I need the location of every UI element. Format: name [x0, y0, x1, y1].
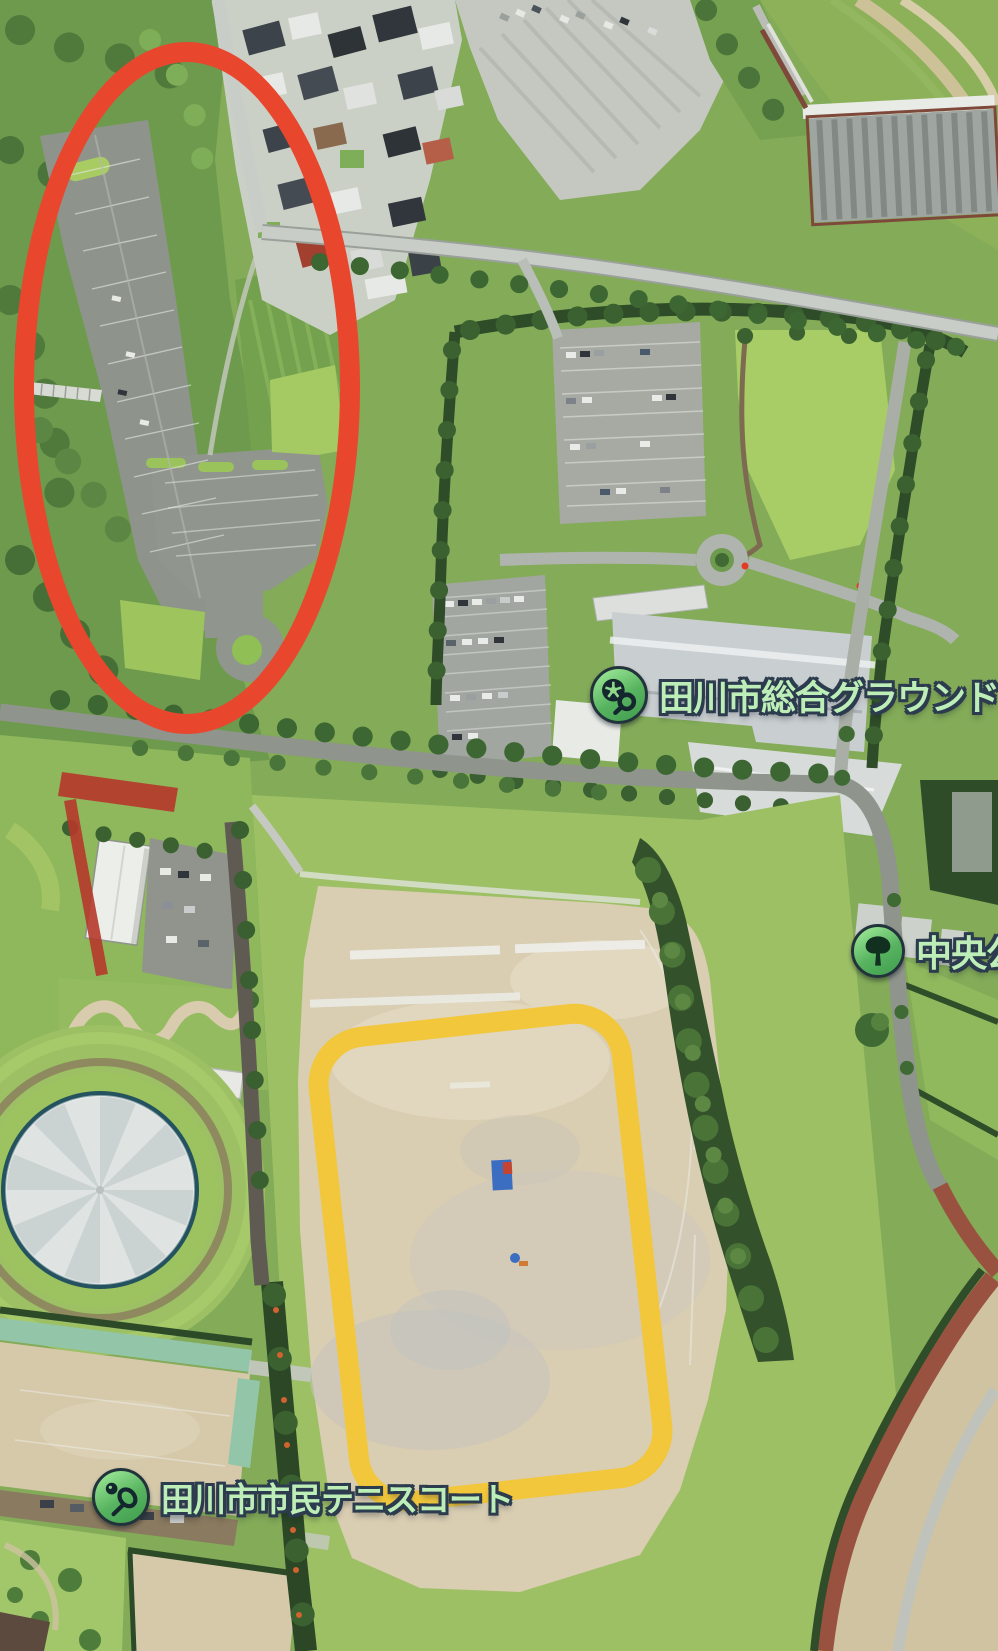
soccer-ball-search-icon	[590, 666, 648, 724]
park-tree-icon	[851, 924, 905, 978]
poi-label-central-park[interactable]: 中央公	[851, 924, 998, 978]
red-ellipse-annotation	[14, 42, 360, 734]
tennis-racket-icon	[92, 1468, 150, 1526]
poi-label-sports-ground[interactable]: 田川市総合グラウンド	[590, 666, 998, 724]
poi-label-text: 田川市市民テニスコート	[161, 1473, 513, 1521]
poi-label-text: 中央公	[916, 925, 998, 977]
yellow-rounded-rect-annotation	[303, 998, 679, 1517]
poi-label-tennis-courts[interactable]: 田川市市民テニスコート	[92, 1468, 513, 1526]
red-map-dot	[742, 563, 749, 570]
terraced-structure	[802, 95, 998, 225]
poi-label-text: 田川市総合グラウンド	[659, 670, 998, 721]
